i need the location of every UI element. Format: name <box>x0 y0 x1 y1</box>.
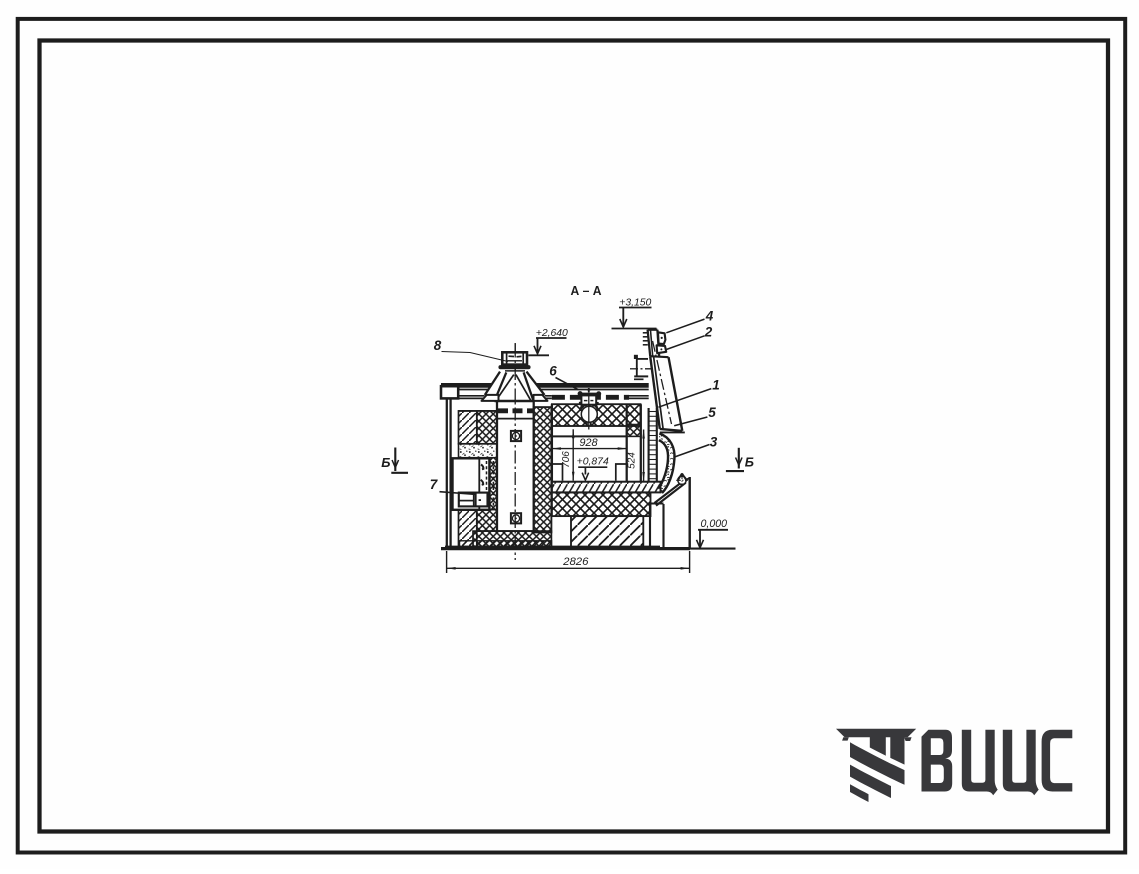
svg-text:524: 524 <box>626 452 637 469</box>
svg-text:928: 928 <box>579 437 598 449</box>
svg-text:3: 3 <box>710 435 718 450</box>
svg-text:4: 4 <box>705 309 714 324</box>
svg-text:2826: 2826 <box>562 556 589 568</box>
svg-text:0,000: 0,000 <box>701 518 728 530</box>
svg-text:Б: Б <box>381 455 390 470</box>
svg-text:А – А: А – А <box>571 283 602 298</box>
svg-text:Б: Б <box>745 455 754 470</box>
svg-text:6: 6 <box>549 364 557 379</box>
svg-text:706: 706 <box>561 451 572 468</box>
svg-text:5: 5 <box>708 405 716 420</box>
svg-text:8: 8 <box>434 338 442 353</box>
svg-text:1: 1 <box>712 378 720 393</box>
svg-text:2: 2 <box>704 325 713 340</box>
svg-text:+0,874: +0,874 <box>577 456 609 467</box>
